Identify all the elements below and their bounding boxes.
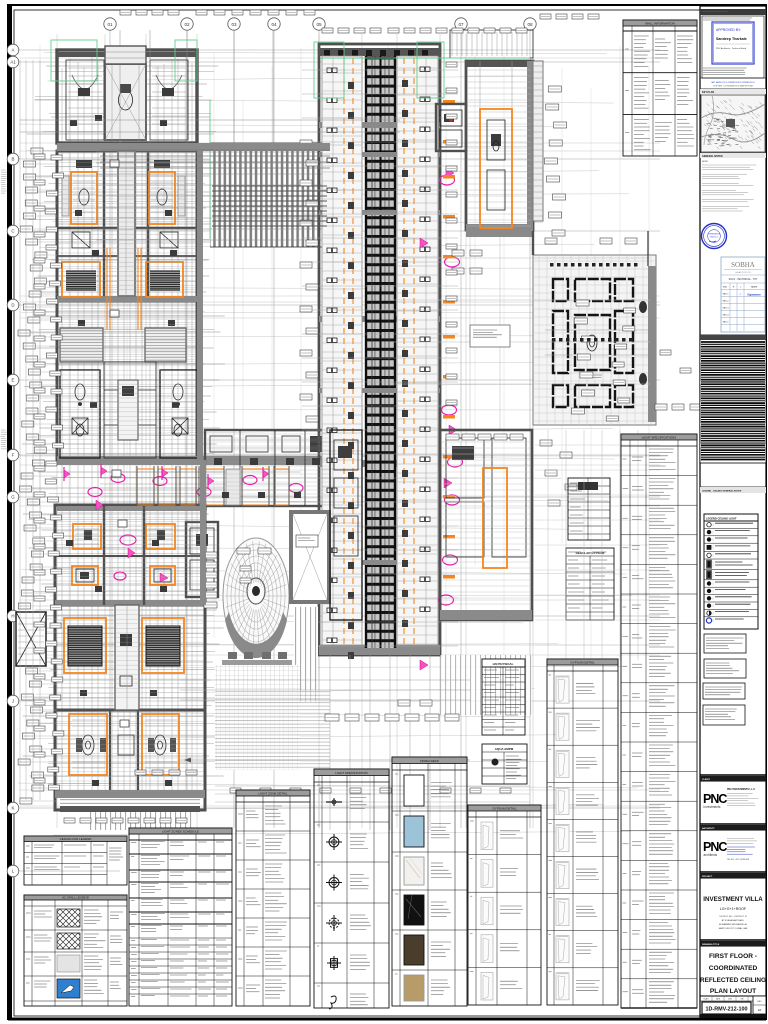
- svg-text:INVESTMENT VILLA: INVESTMENT VILLA: [703, 896, 763, 903]
- svg-text:07: 07: [458, 22, 464, 27]
- svg-text:AC GRILL LEGEND: AC GRILL LEGEND: [62, 895, 90, 899]
- svg-text:SOBHA: SOBHA: [731, 261, 755, 269]
- svg-text:LIGHT ZONE DETAIL: LIGHT ZONE DETAIL: [258, 791, 287, 795]
- svg-text:SBU.1: SBU.1: [722, 294, 729, 296]
- svg-text:DRAWING TITLE: DRAWING TITLE: [702, 943, 720, 946]
- svg-text:LG+G+1+ROOF: LG+G+1+ROOF: [720, 907, 747, 911]
- svg-text:LIGHT SPECIFICATIONS: LIGHT SPECIFICATIONS: [642, 435, 676, 439]
- svg-text:01: 01: [107, 22, 113, 27]
- svg-text:CLIENT: CLIENT: [702, 779, 711, 781]
- svg-text:ARCHITECT: ARCHITECT: [702, 827, 715, 830]
- svg-text:LIGHT ZONES SCHEDULE: LIGHT ZONES SCHEDULE: [162, 829, 199, 833]
- svg-text:SOU1 - TECHNICAL - TCT: SOU1 - TECHNICAL - TCT: [729, 278, 758, 281]
- svg-text:STUDIO LLC: STUDIO LLC: [710, 237, 720, 239]
- svg-text:Sandeep Tharkale: Sandeep Tharkale: [716, 37, 747, 41]
- svg-text:investments: investments: [704, 805, 721, 809]
- svg-text:A1: A1: [10, 60, 16, 65]
- svg-text:FINISH DECK: FINISH DECK: [420, 759, 439, 763]
- svg-text:LIGHT SPECIFICATION: LIGHT SPECIFICATION: [335, 771, 367, 775]
- svg-text:1D-RMV-212-100: 1D-RMV-212-100: [706, 1007, 748, 1013]
- svg-text:PNC: PNC: [703, 792, 727, 806]
- svg-text:REFLECTED CEILING: REFLECTED CEILING: [700, 977, 766, 984]
- svg-text:GYPSUM DETAIL: GYPSUM DETAIL: [492, 806, 516, 810]
- svg-text:LEGEND - CEILING GENERAL NOTES: LEGEND - CEILING GENERAL NOTES: [702, 490, 742, 493]
- svg-text:LIN PHYSICAL: LIN PHYSICAL: [493, 662, 514, 666]
- svg-text:03: 03: [231, 22, 237, 27]
- svg-text:B: B: [12, 157, 15, 162]
- svg-text:02: 02: [184, 22, 190, 27]
- svg-text:GYPSUM DETAIL: GYPSUM DETAIL: [570, 660, 594, 664]
- svg-text:E: E: [12, 378, 15, 383]
- svg-text:CEILING FAN LEGEND: CEILING FAN LEGEND: [60, 837, 93, 841]
- svg-text:TEL NO: +971 4 3388 999: TEL NO: +971 4 3388 999: [727, 859, 749, 861]
- svg-text:H E A D O F F I C E: H E A D O F F I C E: [736, 271, 752, 274]
- svg-text:LAST SAVED BY: B OPERATOR AT B: LAST SAVED BY: B OPERATOR AT B OPERATOR-…: [711, 81, 756, 84]
- svg-text:H: H: [11, 614, 14, 619]
- svg-text:04: 04: [271, 22, 277, 27]
- svg-text:Signature: Signature: [747, 293, 761, 297]
- svg-text:ON PLOT NO: - DISTRICT 11: ON PLOT NO: - DISTRICT 11: [719, 916, 747, 918]
- svg-text:NAME: NAME: [751, 286, 758, 289]
- svg-text:REV: REV: [757, 1001, 762, 1003]
- svg-text:SBU.5: SBU.5: [722, 322, 729, 324]
- svg-text:✓: ✓: [739, 292, 742, 296]
- svg-text:J: J: [12, 699, 14, 704]
- svg-text:SBU.3: SBU.3: [722, 308, 729, 310]
- svg-text:AQUA AMPM: AQUA AMPM: [495, 747, 514, 751]
- svg-text:PLAN LAYOUT: PLAN LAYOUT: [710, 988, 756, 995]
- svg-text:LEGEND CEILING LIGHT: LEGEND CEILING LIGHT: [706, 516, 737, 520]
- svg-text:SBU: SBU: [723, 287, 728, 289]
- svg-text:SBU.4: SBU.4: [722, 315, 729, 317]
- svg-text:REGULAR GYPSUM: REGULAR GYPSUM: [576, 551, 605, 555]
- svg-text:PNC: PNC: [703, 840, 727, 854]
- svg-text:PNC INVESTMENTS L.L.C: PNC INVESTMENTS L.L.C: [727, 789, 756, 791]
- svg-text:K: K: [12, 806, 15, 811]
- svg-text:PNC Architects - Technical Hea: PNC Architects - Technical Head: [716, 47, 747, 50]
- svg-text:08: 08: [527, 22, 533, 27]
- svg-text:10: 10: [758, 1008, 762, 1012]
- svg-text:05: 05: [316, 22, 322, 27]
- svg-text:MAKTOUM CITY, DUBAI, UAE: MAKTOUM CITY, DUBAI, UAE: [719, 927, 748, 930]
- svg-text:G: G: [11, 495, 15, 500]
- svg-text:GENERAL NOTES: GENERAL NOTES: [702, 155, 723, 158]
- svg-text:F: F: [12, 453, 15, 458]
- svg-text:COORDINATED: COORDINATED: [709, 965, 758, 972]
- svg-text:AT SOBHA HARTLAND,: AT SOBHA HARTLAND,: [722, 919, 745, 922]
- svg-text:KEY PLAN: KEY PLAN: [702, 91, 714, 94]
- svg-text:FIRST FLOOR -: FIRST FLOOR -: [709, 953, 757, 960]
- svg-text:SBU.2: SBU.2: [722, 301, 729, 303]
- svg-text:WALL INFORMATION: WALL INFORMATION: [645, 21, 675, 25]
- svg-text:D: D: [11, 303, 14, 308]
- svg-text:C: C: [11, 229, 14, 234]
- svg-text:NOTE:: NOTE:: [702, 161, 709, 163]
- svg-text:A: A: [12, 48, 15, 53]
- svg-text:PROJECT: PROJECT: [702, 876, 713, 878]
- svg-text:MOHAMMED BIN RASHID AL: MOHAMMED BIN RASHID AL: [719, 923, 748, 926]
- svg-text:architects: architects: [704, 853, 718, 857]
- svg-text:APPROVED BY:: APPROVED BY:: [716, 28, 741, 32]
- svg-text:FILE PATH: COORDINATION 1B MAS: FILE PATH: COORDINATION 1B MASTER PLAN: [713, 85, 753, 88]
